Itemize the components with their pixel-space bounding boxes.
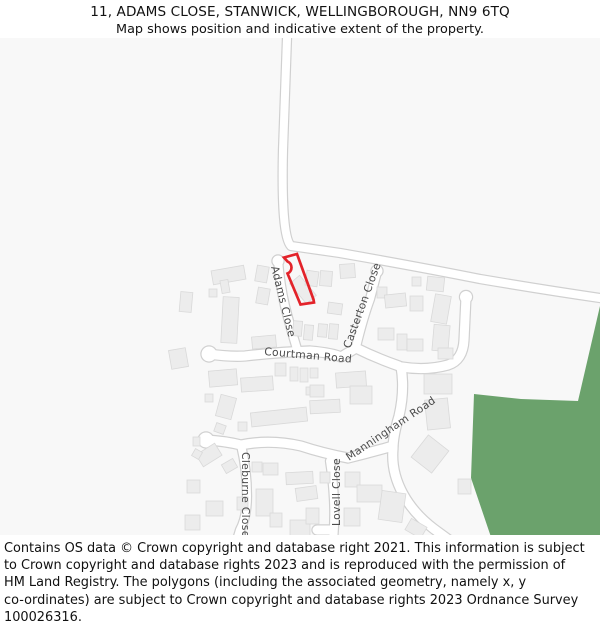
building [412,277,421,286]
footer-line-5: 100026316. [4,609,600,625]
building [397,334,407,350]
building [205,394,213,402]
footer-line-2: to Crown copyright and database rights 2… [4,557,600,574]
building [317,324,327,338]
building [185,515,200,530]
building [378,490,406,522]
building [336,371,367,388]
building [340,263,356,278]
building [410,296,423,311]
map-canvas: Adams CloseCourtman RoadCasterton CloseM… [0,38,600,535]
footer-line-1: Contains OS data © Crown copyright and d… [4,540,600,557]
building [252,462,262,472]
page-title: 11, ADAMS CLOSE, STANWICK, WELLINGBOROUG… [0,0,600,20]
building [241,376,274,392]
building [438,348,453,359]
building [238,422,247,431]
building [208,369,237,387]
building [458,479,471,494]
map-header: 11, ADAMS CLOSE, STANWICK, WELLINGBOROUG… [0,0,600,38]
building [168,348,188,370]
building [256,489,273,516]
building [306,508,319,524]
building [193,437,200,446]
building [378,328,394,340]
road-label-cleburne-close: Cleburne Close [239,452,252,535]
building [300,368,308,382]
building [327,302,342,315]
building [344,508,360,526]
building [384,293,406,308]
building [319,271,332,287]
building [275,363,286,376]
building [424,374,452,394]
building [295,486,318,502]
building [407,339,423,351]
building [206,501,223,516]
building [320,472,330,483]
building [221,297,239,344]
building [290,367,298,381]
building [255,265,270,283]
footer-line-3: HM Land Registry. The polygons (includin… [4,574,600,591]
building [357,485,382,502]
map: Adams CloseCourtman RoadCasterton CloseM… [0,38,600,535]
building [310,399,341,414]
building [256,287,271,305]
building [310,385,324,397]
building [432,324,450,351]
building [350,386,372,404]
building [270,513,282,527]
building [303,325,313,341]
road-label-lovell-close: Lovell Close [330,458,343,526]
page-subtitle: Map shows position and indicative extent… [0,20,600,37]
building [179,292,193,313]
page: 11, ADAMS CLOSE, STANWICK, WELLINGBOROUG… [0,0,600,625]
copyright-footer: Contains OS data © Crown copyright and d… [0,540,600,625]
building [310,368,318,378]
building [286,471,314,484]
building [263,463,278,475]
building [220,279,230,293]
building [328,324,338,340]
building [209,289,217,297]
building [187,480,200,493]
building [426,276,444,292]
footer-line-4: co-ordinates) are subject to Crown copyr… [4,592,600,609]
